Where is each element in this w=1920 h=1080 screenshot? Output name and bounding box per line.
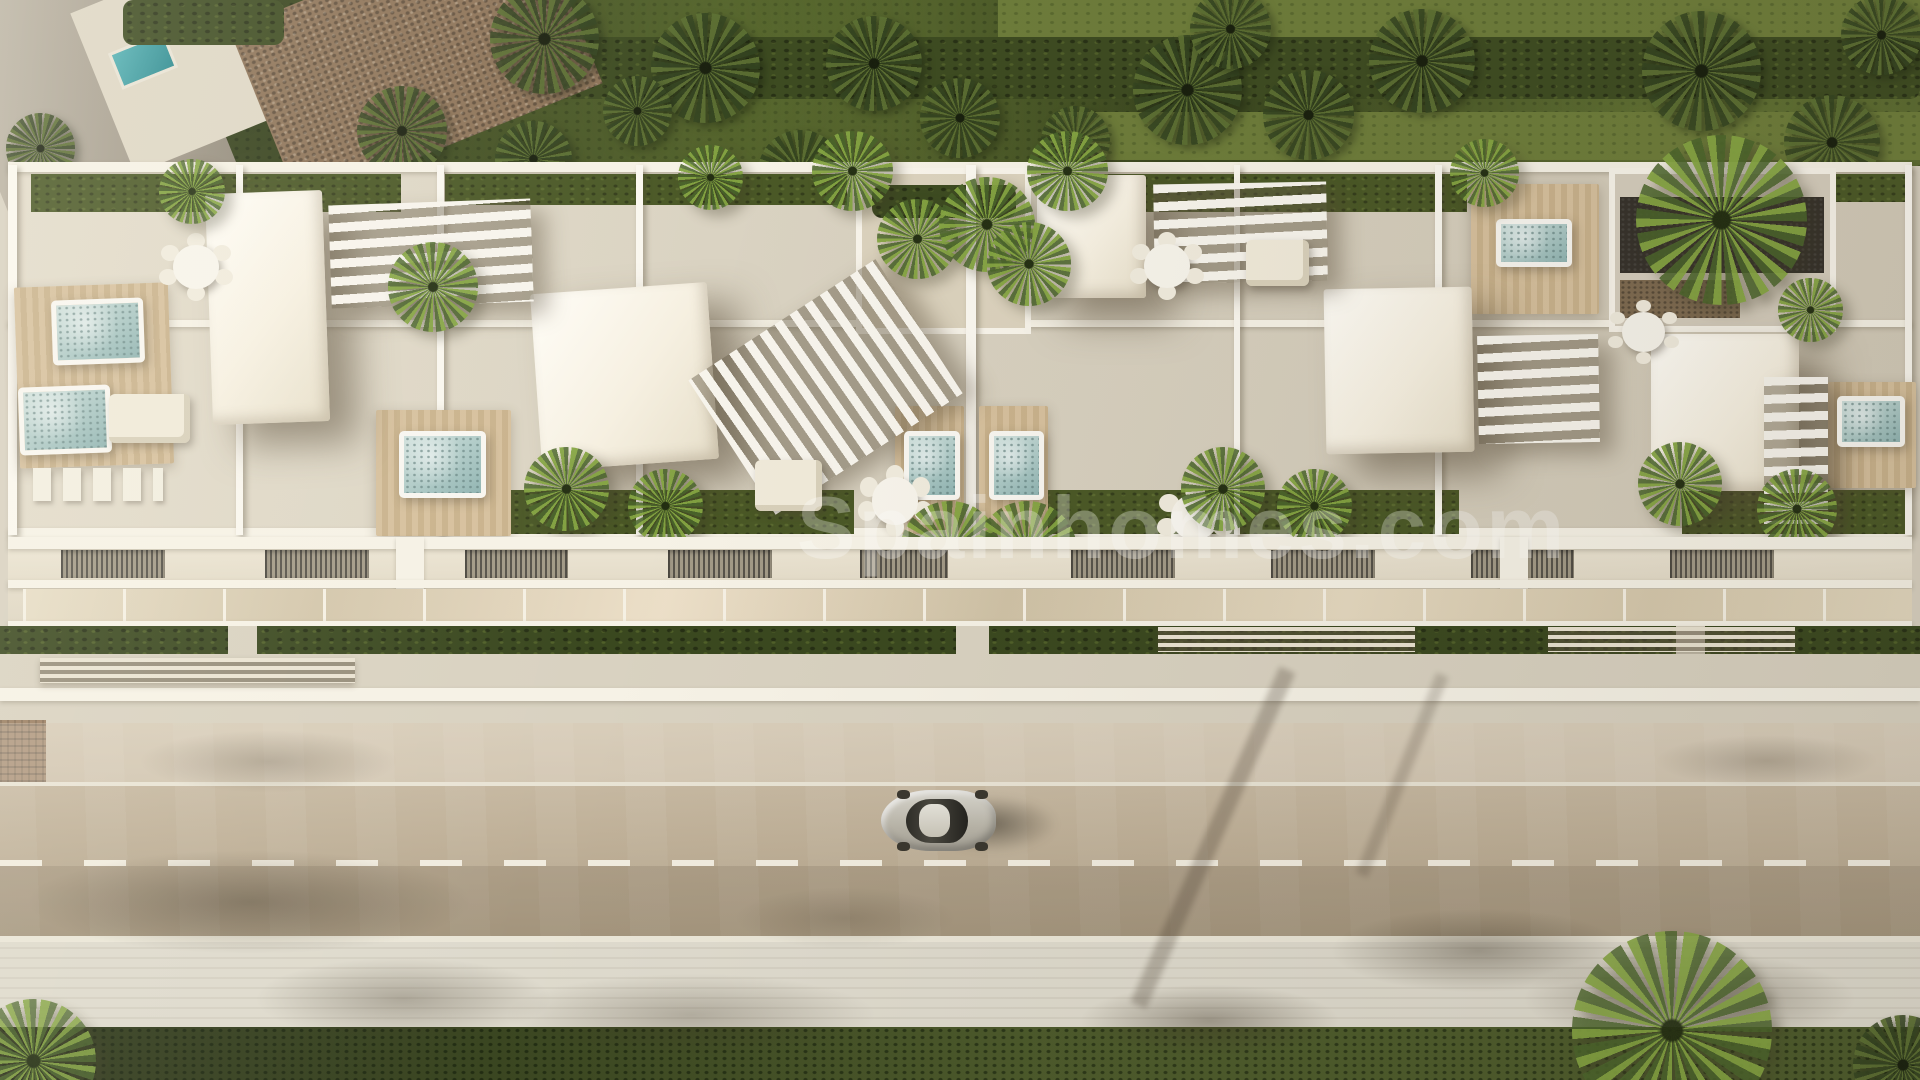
stair-tower <box>205 190 330 425</box>
hedge-gap-path <box>228 626 257 654</box>
balcony-slab <box>8 580 1913 588</box>
hedge-gap-path <box>956 626 989 654</box>
stair-tower <box>530 282 719 471</box>
courtyard-big-palm <box>1636 135 1807 305</box>
car-wheels <box>897 790 910 799</box>
louvre-window <box>61 550 165 578</box>
shadow-patch <box>19 848 480 956</box>
roof-palm <box>812 131 893 211</box>
dining-set <box>1622 312 1664 352</box>
outdoor-sofa <box>109 394 190 443</box>
jacuzzi <box>1496 219 1573 267</box>
shadow-patch <box>134 729 403 794</box>
aerial-render: Spainhomes.com <box>0 0 1920 1080</box>
jacuzzi <box>399 431 485 498</box>
roof-palm <box>1027 131 1108 211</box>
roof-palm <box>678 145 743 210</box>
jacuzzi <box>51 298 145 366</box>
roof-palm <box>524 447 608 531</box>
shrub-patch <box>123 0 284 45</box>
palm-tree <box>1841 0 1920 75</box>
louvre-window <box>265 550 369 578</box>
shadow-patch <box>1651 734 1881 788</box>
potted-palm <box>1778 278 1843 343</box>
jacuzzi <box>1837 396 1904 447</box>
slatted-canopy <box>40 658 355 683</box>
roof-palm <box>159 159 224 224</box>
louvre-window <box>1670 550 1774 578</box>
shadow-patch <box>499 972 883 1058</box>
jacuzzi <box>18 384 112 455</box>
palm-tree <box>920 78 1001 158</box>
shadow-patch <box>1075 983 1344 1059</box>
watermark: Spainhomes.com <box>797 477 1568 579</box>
palm-tree <box>1642 11 1761 131</box>
car-roof <box>919 804 950 837</box>
dining-set <box>173 245 219 289</box>
roof-palm <box>628 469 703 544</box>
palm-tree <box>603 76 672 146</box>
slatted-canopy <box>1548 627 1796 652</box>
louvre-window <box>465 550 569 578</box>
palm-tree <box>1369 9 1475 114</box>
shadow-patch <box>730 886 960 951</box>
palm-tree <box>826 16 922 111</box>
shadow-patch <box>250 956 557 1042</box>
palm-tree <box>1263 70 1353 160</box>
pergola <box>1477 334 1600 444</box>
roof-palm <box>1638 442 1722 526</box>
car <box>881 786 1021 855</box>
stair-tower <box>1323 287 1474 455</box>
boundary-wall <box>0 688 1920 701</box>
roof-palm <box>388 242 478 332</box>
slatted-canopy <box>1158 627 1415 652</box>
outdoor-sofa <box>1246 240 1309 286</box>
roof-palm <box>1450 139 1519 207</box>
glass-mullions <box>23 589 1912 622</box>
sun-loungers <box>33 468 164 501</box>
courtyard-palm <box>987 222 1071 305</box>
louvre-window <box>668 550 772 578</box>
